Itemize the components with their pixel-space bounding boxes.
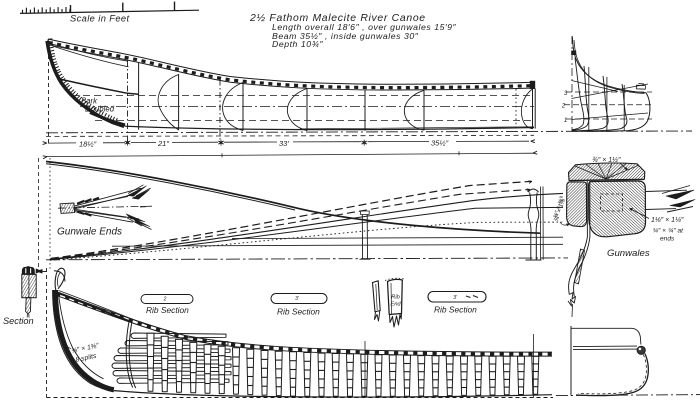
svg-text:Rib Section: Rib Section [434,305,477,315]
svg-text:Depth 10¾″: Depth 10¾″ [272,39,323,49]
svg-text:¾″ × ¾″ at: ¾″ × ¾″ at [653,228,685,235]
svg-text:Rib Section: Rib Section [146,305,189,315]
svg-text:Gunwales: Gunwales [607,248,650,259]
svg-text:Rib Section: Rib Section [277,307,320,317]
svg-text:33′: 33′ [279,139,289,148]
svg-text:ends: ends [660,236,675,243]
svg-text:Rib: Rib [391,295,400,301]
svg-text:21″: 21″ [157,139,169,148]
svg-text:Doubled: Doubled [85,105,115,114]
svg-text:Section: Section [3,316,34,326]
svg-text:End: End [390,302,401,308]
svg-text:1⅛″ × 1¼″: 1⅛″ × 1¼″ [651,217,684,224]
svg-text:2: 2 [561,104,566,110]
svg-text:18½″: 18½″ [79,140,97,149]
svg-text:Scale in Feet: Scale in Feet [70,14,129,24]
svg-text:2: 2 [163,297,167,303]
svg-text:1: 1 [564,118,567,124]
svg-text:35½″: 35½″ [431,138,449,147]
svg-text:Gunwale Ends: Gunwale Ends [57,227,122,238]
